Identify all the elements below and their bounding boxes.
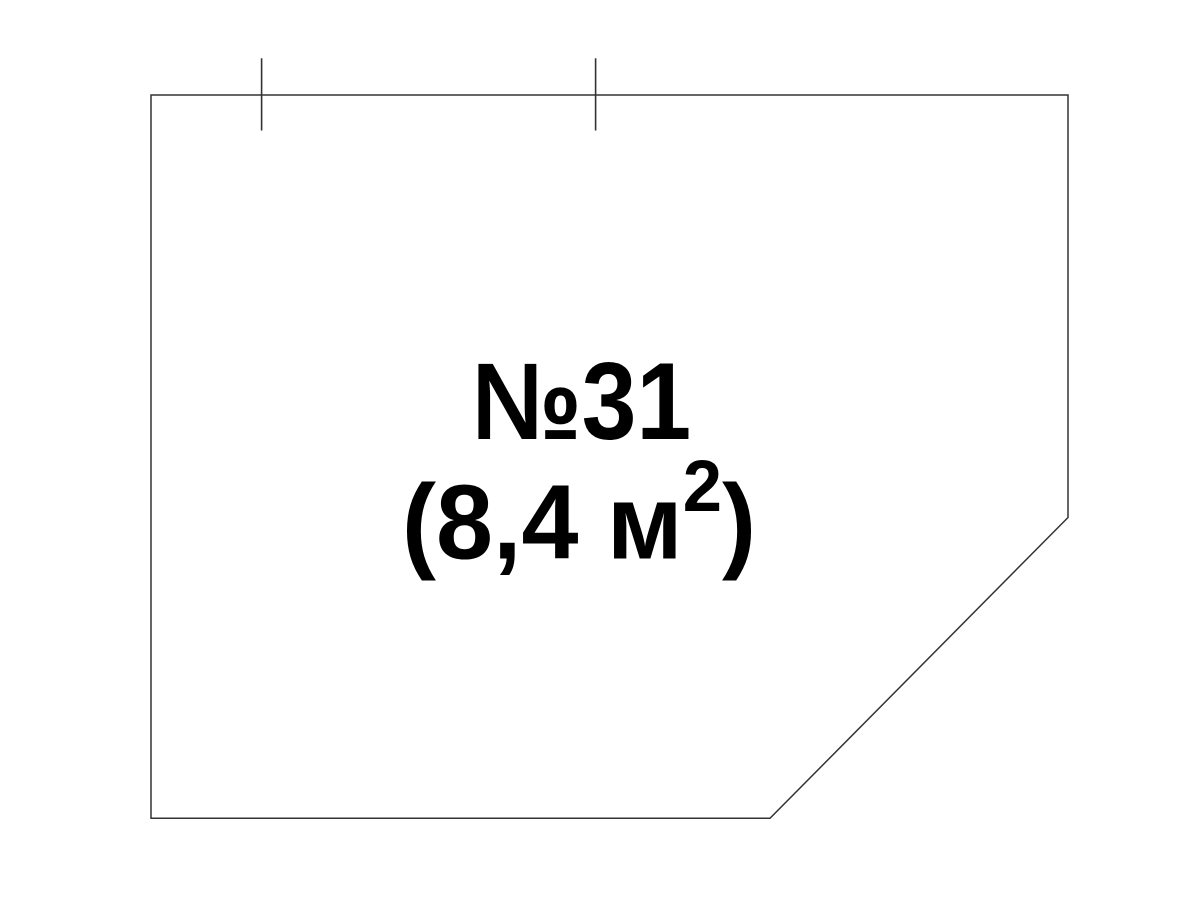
svg-text:№31: №31	[472, 341, 692, 463]
